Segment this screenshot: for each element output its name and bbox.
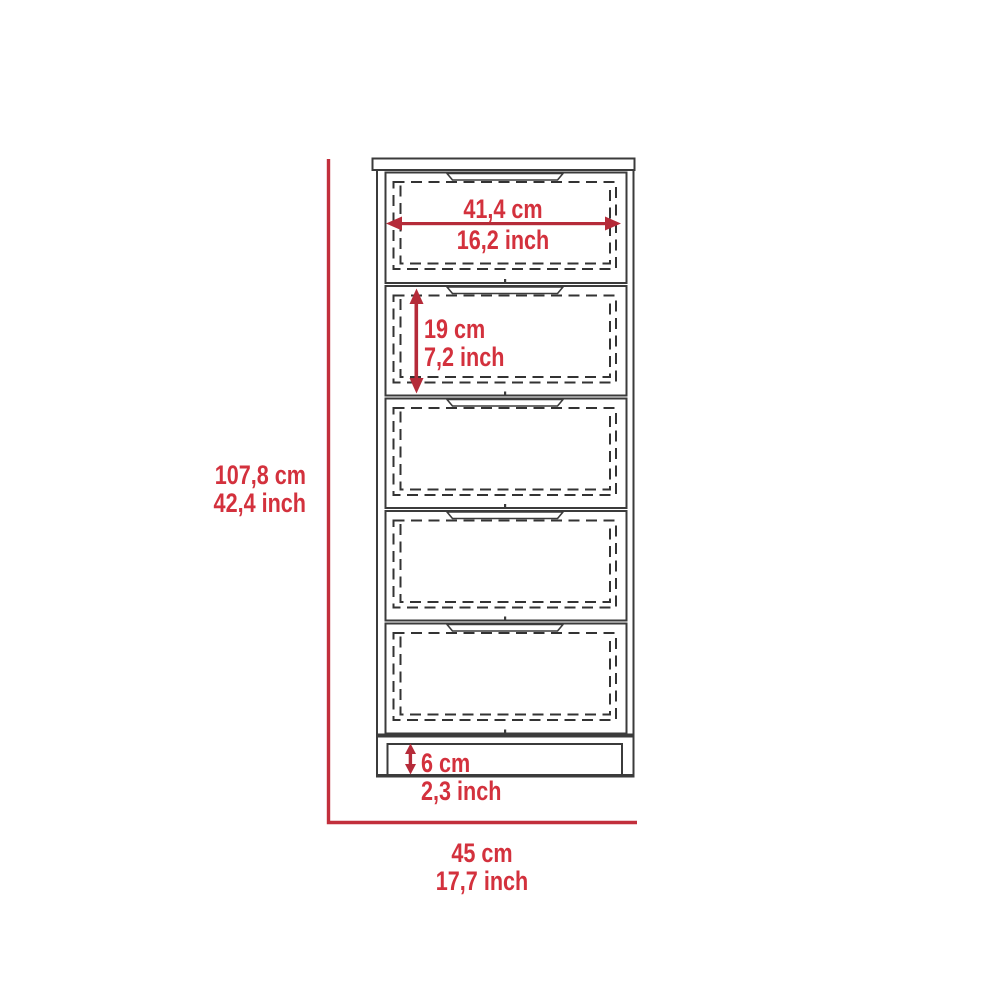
drawer-height-label-imperial: 7,2 inch <box>424 344 504 370</box>
drawer-handle <box>447 512 563 519</box>
center-tick <box>504 730 506 734</box>
total-width-label-imperial: 17,7 inch <box>386 868 578 894</box>
drawer-face <box>386 624 627 734</box>
center-tick <box>504 392 506 396</box>
center-tick <box>504 617 506 621</box>
total-width-label-metric: 45 cm <box>386 840 578 866</box>
cabinet-top-panel <box>373 159 635 171</box>
drawer-handle <box>447 287 563 294</box>
drawer-handle <box>447 174 563 181</box>
total-height-label-metric: 107,8 cm <box>114 462 306 488</box>
drawer-handle <box>447 400 563 407</box>
drawer-face <box>386 511 627 621</box>
drawer-width-label-imperial: 16,2 inch <box>407 227 599 253</box>
drawer-5 <box>386 624 627 734</box>
arrow-shaft <box>415 299 419 382</box>
drawer-width-label-metric: 41,4 cm <box>407 196 599 222</box>
center-tick <box>504 504 506 508</box>
drawer-3 <box>386 399 627 509</box>
drawer-4 <box>386 511 627 621</box>
base-height-label-imperial: 2,3 inch <box>421 778 501 804</box>
center-tick <box>504 279 506 283</box>
total-height-label-imperial: 42,4 inch <box>114 490 306 516</box>
drawer-face <box>386 399 627 509</box>
base-height-label-metric: 6 cm <box>421 750 470 776</box>
drawer-handle <box>447 625 563 632</box>
drawer-height-label-metric: 19 cm <box>424 316 485 342</box>
dresser-dimension-diagram: 41,4 cm 16,2 inch 19 cm 7,2 inch 107,8 c… <box>0 0 1000 1000</box>
